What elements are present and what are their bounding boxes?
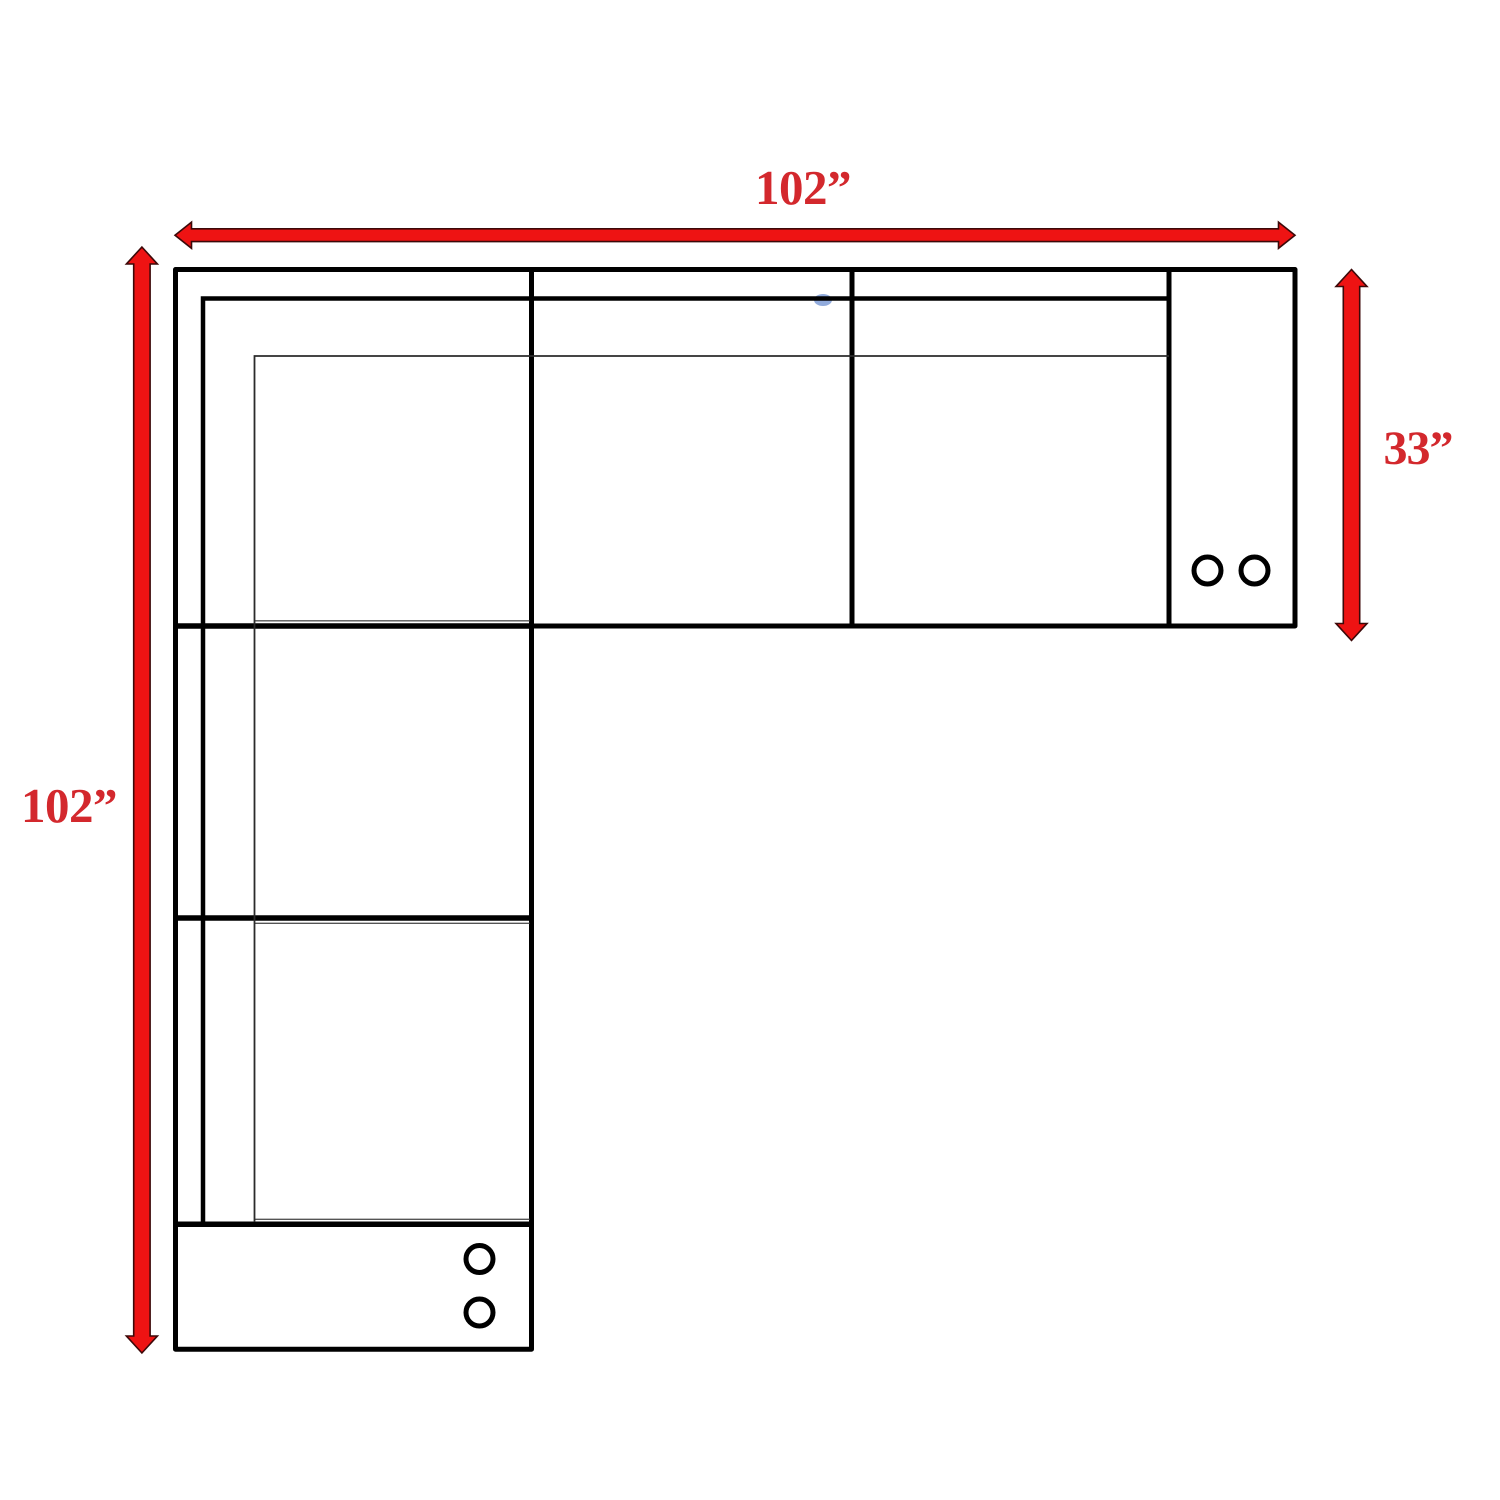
svg-text:102”: 102”: [755, 160, 851, 215]
svg-text:33”: 33”: [1384, 422, 1453, 475]
svg-text:102”: 102”: [21, 778, 117, 833]
